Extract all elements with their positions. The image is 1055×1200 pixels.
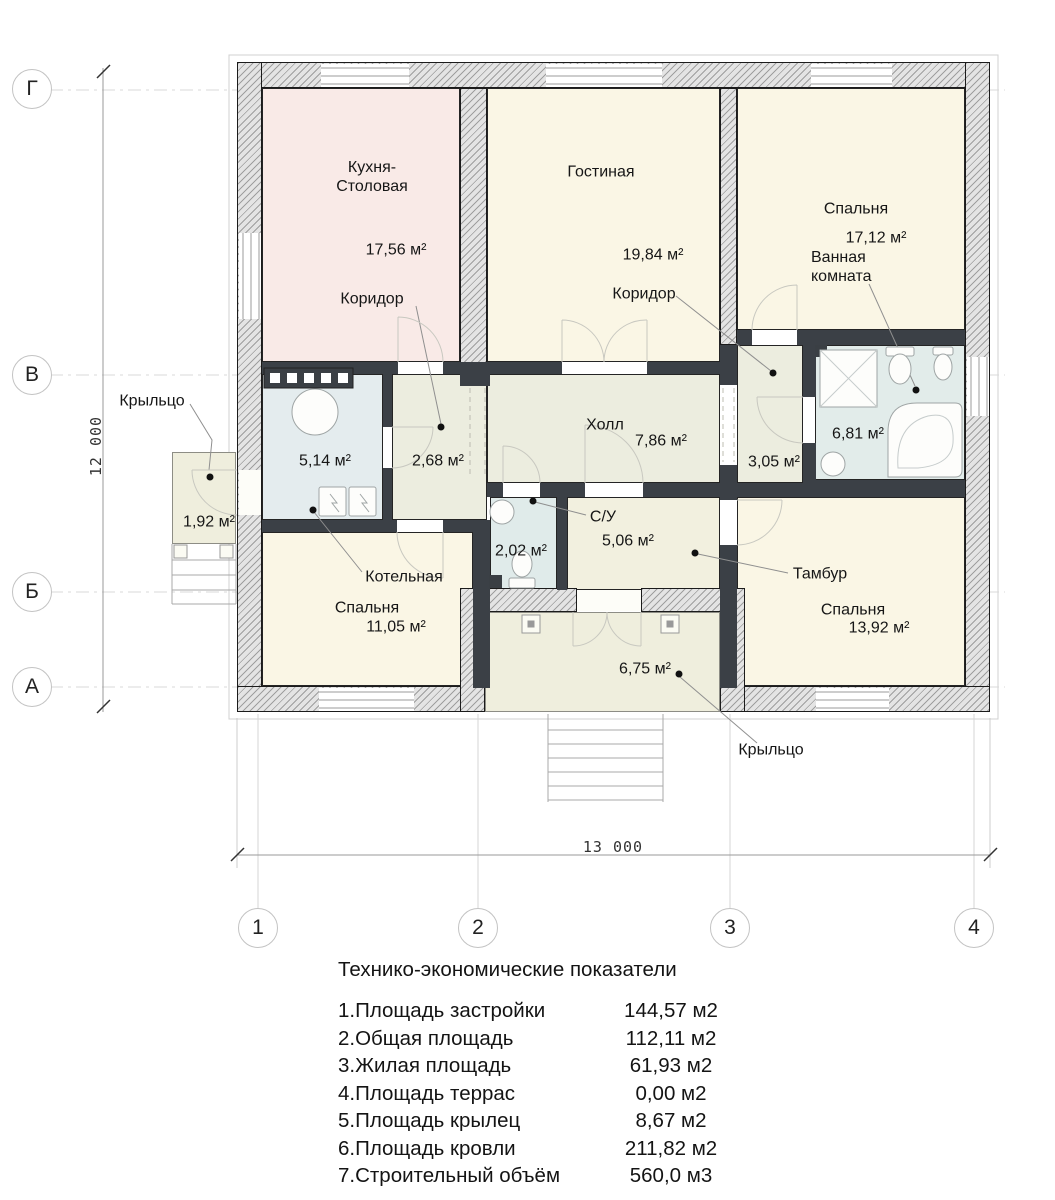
teo-row-value: 8,67 м2	[606, 1107, 736, 1135]
teo-row-label: 6.Площадь кровли	[338, 1135, 606, 1163]
room-area: 17,56 м²	[366, 241, 427, 260]
teo-row: 1.Площадь застройки 144,57 м2	[338, 997, 736, 1025]
teo-row: 2.Общая площадь 112,11 м2	[338, 1025, 736, 1053]
room-label: Крыльцо	[738, 741, 803, 760]
room-area: 13,92 м²	[849, 619, 910, 638]
teo-table: Технико-экономические показатели 1.Площа…	[338, 958, 736, 1190]
teo-row-value: 112,11 м2	[606, 1025, 736, 1053]
boiler-tank-icon	[292, 389, 338, 435]
room-label: Котельная	[365, 568, 442, 587]
door-swings	[192, 285, 803, 646]
room-label: Холл	[586, 416, 624, 435]
floor-plan-sheet: Кухня- Столовая 17,56 м² Гостиная 19,84 …	[0, 0, 1055, 1200]
teo-row: 5.Площадь крылец 8,67 м2	[338, 1107, 736, 1135]
room-area: 17,12 м²	[846, 229, 907, 248]
axis-col-2: 2	[458, 908, 498, 948]
axis-row-b: Б	[12, 572, 52, 612]
room-area: 11,05 м²	[366, 618, 426, 637]
teo-row-value: 211,82 м2	[606, 1135, 736, 1163]
kitchen-counter	[264, 368, 353, 388]
teo-row-value: 0,00 м2	[606, 1080, 736, 1108]
teo-row: 7.Строительный объём 560,0 м3	[338, 1162, 736, 1190]
room-area: 6,81 м²	[832, 425, 884, 444]
room-label: Спальня	[335, 599, 399, 618]
teo-row-value: 61,93 м2	[606, 1052, 736, 1080]
room-label: Коридор	[612, 285, 675, 304]
room-label: Ванная комната	[811, 248, 872, 286]
sink-icon	[821, 452, 845, 476]
teo-row-label: 3.Жилая площадь	[338, 1052, 606, 1080]
appliance-icon	[319, 487, 346, 516]
room-area: 5,06 м²	[602, 532, 654, 551]
room-label: Гостиная	[567, 163, 634, 182]
teo-title: Технико-экономические показатели	[338, 958, 736, 982]
teo-row-label: 7.Строительный объём	[338, 1162, 606, 1190]
axis-col-1: 1	[238, 908, 278, 948]
appliance-icon	[349, 487, 376, 516]
room-area: 5,14 м²	[299, 452, 351, 471]
dimension-horizontal: 13 000	[583, 838, 643, 856]
room-area: 2,68 м²	[412, 452, 464, 471]
axis-row-v: В	[12, 355, 52, 395]
room-label: Кухня- Столовая	[336, 158, 408, 196]
room-area: 19,84 м²	[623, 246, 684, 265]
dimension-vertical: 12 000	[87, 416, 105, 476]
teo-row-label: 2.Общая площадь	[338, 1025, 606, 1053]
teo-row-value: 560,0 м3	[606, 1162, 736, 1190]
room-label: Коридор	[340, 290, 403, 309]
leader-lines	[190, 284, 915, 743]
room-area: 7,86 м²	[635, 432, 687, 451]
sink-icon	[490, 500, 514, 524]
toilet-icon	[509, 578, 535, 588]
porch-posts	[174, 545, 679, 633]
room-label: Крыльцо	[119, 392, 184, 411]
room-label: Тамбур	[793, 565, 847, 584]
axis-row-g: Г	[12, 69, 52, 109]
bathroom-fixtures	[815, 345, 962, 477]
teo-row-label: 5.Площадь крылец	[338, 1107, 606, 1135]
axis-row-a: А	[12, 667, 52, 707]
room-area: 3,05 м²	[748, 453, 800, 472]
teo-row-value: 144,57 м2	[606, 997, 736, 1025]
teo-row-label: 4.Площадь террас	[338, 1080, 606, 1108]
axis-col-4: 4	[954, 908, 994, 948]
teo-row: 6.Площадь кровли 211,82 м2	[338, 1135, 736, 1163]
axis-col-3: 3	[710, 908, 750, 948]
room-area: 6,75 м²	[619, 660, 671, 679]
dimension-lines	[103, 68, 990, 868]
stairs-bottom	[548, 714, 663, 802]
room-area: 1,92 м²	[183, 513, 235, 532]
room-label: Спальня	[821, 601, 885, 620]
bathtub-icon	[888, 403, 962, 477]
teo-row: 3.Жилая площадь 61,93 м2	[338, 1052, 736, 1080]
room-area: 2,02 м²	[495, 542, 547, 561]
room-label: Спальня	[824, 200, 888, 219]
room-label: С/У	[590, 508, 616, 527]
dimension-ticks	[97, 65, 997, 861]
teo-row-label: 1.Площадь застройки	[338, 997, 606, 1025]
teo-row: 4.Площадь террас 0,00 м2	[338, 1080, 736, 1108]
